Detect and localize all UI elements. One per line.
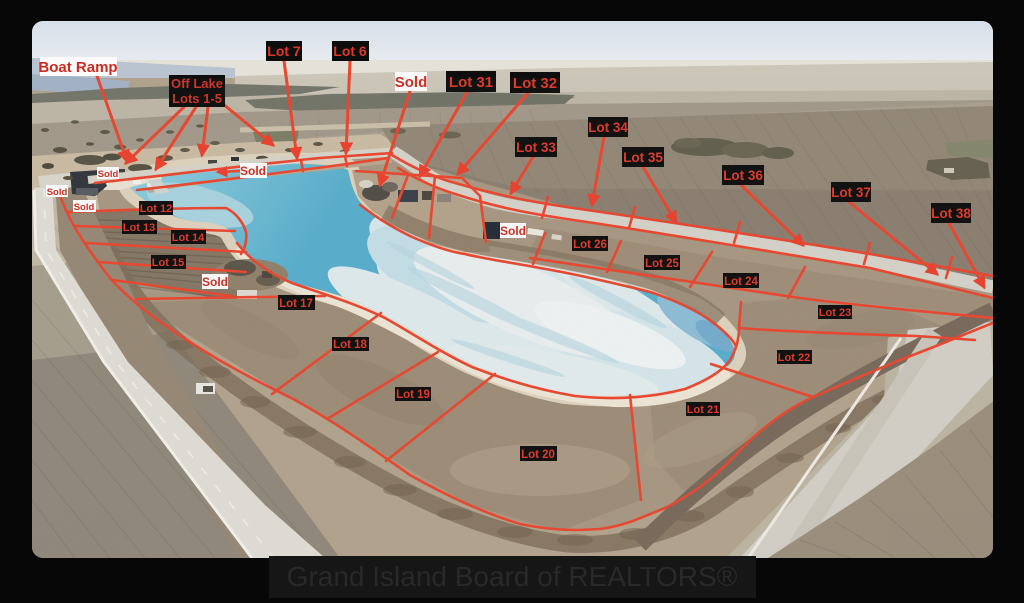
svg-text:Lot 6: Lot 6 xyxy=(333,43,367,59)
svg-text:Grand Island Board of REALTORS: Grand Island Board of REALTORS® xyxy=(287,561,738,592)
svg-text:Lot 7: Lot 7 xyxy=(267,43,301,59)
svg-text:Boat Ramp: Boat Ramp xyxy=(38,59,117,76)
